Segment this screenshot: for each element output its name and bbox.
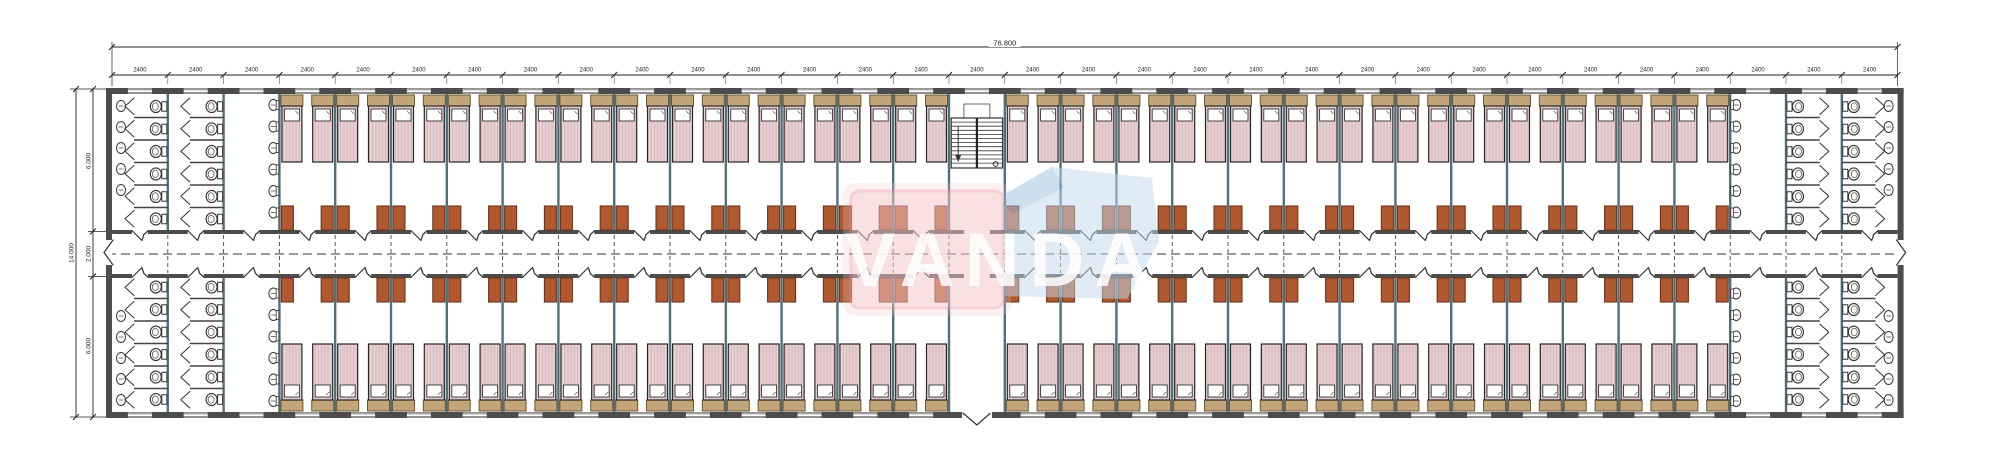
pillow xyxy=(1375,385,1390,397)
stall-door-swing xyxy=(125,143,134,160)
headboard xyxy=(1509,400,1531,411)
bay-width-label: 2400 xyxy=(803,68,817,74)
bay-width-label: 2400 xyxy=(1082,68,1096,74)
stall-door-swing xyxy=(181,121,190,138)
basin-back xyxy=(276,208,279,217)
table xyxy=(600,206,612,230)
pillow xyxy=(619,385,634,397)
stall-door-swing xyxy=(181,98,190,115)
pillow xyxy=(563,109,578,121)
headboard xyxy=(479,400,501,411)
pillow xyxy=(1152,109,1167,121)
pillow xyxy=(898,385,913,397)
headboard xyxy=(1062,95,1084,106)
table xyxy=(1286,278,1298,302)
headboard xyxy=(926,95,948,106)
pillow xyxy=(1624,109,1639,121)
entrance xyxy=(962,412,992,426)
pillow xyxy=(675,109,690,121)
pillow xyxy=(1456,109,1471,121)
bay-width-label: 2400 xyxy=(1417,68,1431,74)
headboard xyxy=(1428,95,1450,106)
headboard xyxy=(783,400,805,411)
table xyxy=(784,278,796,302)
pillow xyxy=(284,109,299,121)
floorplan-canvas: 76.8002400240024002400240024002400240024… xyxy=(0,0,2000,474)
table xyxy=(1047,206,1059,230)
table xyxy=(1047,278,1059,302)
table xyxy=(656,206,668,230)
headboard xyxy=(312,95,334,106)
pillow xyxy=(1654,385,1669,397)
headboard xyxy=(1062,400,1084,411)
table xyxy=(1621,206,1633,230)
pillow xyxy=(706,385,721,397)
pillow xyxy=(1233,109,1248,121)
table xyxy=(1102,278,1114,302)
stall-door-swing xyxy=(181,166,190,183)
toilet-tank xyxy=(162,147,167,157)
headboard xyxy=(1230,400,1252,411)
headboard xyxy=(1564,400,1586,411)
headboard xyxy=(1205,95,1227,106)
pillow xyxy=(817,385,832,397)
headboard xyxy=(281,95,303,106)
pillow xyxy=(1041,385,1056,397)
pillow xyxy=(1177,385,1192,397)
room-depth-label: 6.000 xyxy=(86,152,93,169)
pillow xyxy=(1568,385,1583,397)
table xyxy=(1230,278,1242,302)
headboard xyxy=(1707,95,1729,106)
pillow xyxy=(483,109,498,121)
headboard xyxy=(895,400,917,411)
bay-width-label: 2400 xyxy=(1863,68,1877,74)
table xyxy=(1565,278,1577,302)
pillow xyxy=(1624,385,1639,397)
headboard xyxy=(393,400,415,411)
pillow xyxy=(762,109,777,121)
pillow xyxy=(1487,385,1502,397)
table xyxy=(672,206,684,230)
pillow xyxy=(1512,385,1527,397)
headboard xyxy=(1316,400,1338,411)
table xyxy=(1230,206,1242,230)
stair-landing xyxy=(964,104,990,118)
bay-width-label: 2400 xyxy=(1696,68,1710,74)
headboard xyxy=(337,400,359,411)
headboard xyxy=(1260,400,1282,411)
table xyxy=(935,206,947,230)
table xyxy=(1342,206,1354,230)
table xyxy=(768,278,780,302)
headboard xyxy=(814,95,836,106)
headboard xyxy=(1230,95,1252,106)
table xyxy=(1660,278,1672,302)
table xyxy=(321,206,333,230)
table xyxy=(712,278,724,302)
headboard xyxy=(758,95,780,106)
bay-width-label: 2400 xyxy=(524,68,538,74)
headboard xyxy=(895,95,917,106)
headboard xyxy=(672,95,694,106)
headboard xyxy=(1453,95,1475,106)
headboard xyxy=(616,95,638,106)
headboard xyxy=(814,400,836,411)
pillow xyxy=(1010,109,1025,121)
headboard xyxy=(870,400,892,411)
floorplan-svg: 76.8002400240024002400240024002400240024… xyxy=(0,0,2000,474)
headboard xyxy=(368,95,390,106)
table xyxy=(393,206,405,230)
table xyxy=(1214,278,1226,302)
table xyxy=(1118,206,1130,230)
table xyxy=(377,278,389,302)
pillow xyxy=(427,109,442,121)
pillow xyxy=(396,109,411,121)
headboard xyxy=(616,400,638,411)
table xyxy=(449,206,461,230)
headboard xyxy=(1397,400,1419,411)
table xyxy=(1174,206,1186,230)
headboard xyxy=(368,400,390,411)
bay-width-label: 2400 xyxy=(1026,68,1040,74)
pillow xyxy=(1431,109,1446,121)
bay-width-label: 2400 xyxy=(1138,68,1152,74)
pillow xyxy=(1345,109,1360,121)
pillow xyxy=(1041,109,1056,121)
toilet-tank xyxy=(162,214,167,224)
table xyxy=(433,278,445,302)
headboard xyxy=(312,400,334,411)
table xyxy=(1397,278,1409,302)
table xyxy=(1509,206,1521,230)
bay-width-label: 2400 xyxy=(1249,68,1263,74)
headboard xyxy=(591,95,613,106)
stall-door-swing xyxy=(181,143,190,160)
wall-bottom xyxy=(106,412,1904,418)
headboard xyxy=(1285,95,1307,106)
table xyxy=(935,278,947,302)
headboard xyxy=(1149,400,1171,411)
stall-door-swing xyxy=(125,211,134,228)
headboard xyxy=(1149,95,1171,106)
bay-width-label: 2400 xyxy=(1584,68,1598,74)
pillow xyxy=(1710,109,1725,121)
bay-width-label: 2400 xyxy=(1640,68,1654,74)
pillow xyxy=(1152,385,1167,397)
table xyxy=(1605,206,1617,230)
table xyxy=(1326,278,1338,302)
table xyxy=(544,278,556,302)
pillow xyxy=(1400,385,1415,397)
table xyxy=(1716,278,1728,302)
pillow xyxy=(787,385,802,397)
table xyxy=(1063,206,1075,230)
pillow xyxy=(929,385,944,397)
table xyxy=(1493,278,1505,302)
pillow xyxy=(619,109,634,121)
stall-door-swing xyxy=(181,188,190,205)
sanitary-right-bottom xyxy=(1731,279,1893,408)
toilet-tank xyxy=(218,192,223,202)
table xyxy=(823,278,835,302)
height-total-label: 14.000 xyxy=(69,243,76,263)
table xyxy=(1270,206,1282,230)
exit-opening-right xyxy=(1897,240,1903,265)
pillow xyxy=(594,109,609,121)
headboard xyxy=(1595,400,1617,411)
pillow xyxy=(1654,109,1669,121)
headboard xyxy=(1372,95,1394,106)
bay-width-label: 2400 xyxy=(356,68,370,74)
pillow xyxy=(538,109,553,121)
headboard xyxy=(337,95,359,106)
pillow xyxy=(315,109,330,121)
table xyxy=(1565,206,1577,230)
pillow xyxy=(842,385,857,397)
pillow xyxy=(1208,109,1223,121)
basin-back xyxy=(276,122,279,131)
pillow xyxy=(594,385,609,397)
headboard xyxy=(1118,400,1140,411)
pillow xyxy=(452,109,467,121)
table xyxy=(560,206,572,230)
headboard xyxy=(1341,95,1363,106)
headboard xyxy=(281,400,303,411)
headboard xyxy=(1620,95,1642,106)
bay-width-label: 2400 xyxy=(914,68,928,74)
headboard xyxy=(535,95,557,106)
toilet-tank xyxy=(218,169,223,179)
headboard xyxy=(1676,95,1698,106)
pillow xyxy=(650,109,665,121)
headboard xyxy=(1707,400,1729,411)
table xyxy=(712,206,724,230)
table xyxy=(1453,278,1465,302)
headboard xyxy=(591,400,613,411)
table xyxy=(1676,206,1688,230)
headboard xyxy=(1397,95,1419,106)
stall-door-swing xyxy=(125,121,134,138)
pillow xyxy=(1289,109,1304,121)
pillow xyxy=(873,385,888,397)
pillow xyxy=(817,109,832,121)
headboard xyxy=(839,400,861,411)
table xyxy=(1621,278,1633,302)
table xyxy=(1270,278,1282,302)
headboard xyxy=(1539,400,1561,411)
table xyxy=(281,278,293,302)
stall-door-swing xyxy=(125,98,134,115)
table xyxy=(784,206,796,230)
headboard xyxy=(839,95,861,106)
toilet-tank xyxy=(162,102,167,112)
pillow xyxy=(1233,385,1248,397)
table xyxy=(1326,206,1338,230)
dimension-left: 14.0006.0002.0006.000 xyxy=(69,86,113,420)
table xyxy=(377,206,389,230)
headboard xyxy=(1174,400,1196,411)
bay-width-label: 2400 xyxy=(1528,68,1542,74)
bay-width-label: 2400 xyxy=(1807,68,1821,74)
headboard xyxy=(1093,95,1115,106)
pillow xyxy=(1487,109,1502,121)
table xyxy=(1063,278,1075,302)
table xyxy=(1158,206,1170,230)
wall-top xyxy=(106,88,1904,94)
room-depth-label: 6.000 xyxy=(86,337,93,354)
table xyxy=(656,278,668,302)
table xyxy=(321,278,333,302)
headboard xyxy=(1285,400,1307,411)
table xyxy=(1605,278,1617,302)
toilet-tank xyxy=(218,147,223,157)
toilet-tank xyxy=(162,169,167,179)
pillow xyxy=(1375,109,1390,121)
headboard xyxy=(1428,400,1450,411)
pillow xyxy=(675,385,690,397)
table xyxy=(1437,206,1449,230)
table xyxy=(895,206,907,230)
toilet-tank xyxy=(218,102,223,112)
bay-width-label: 2400 xyxy=(1751,68,1765,74)
headboard xyxy=(1372,400,1394,411)
headboard xyxy=(1595,95,1617,106)
pillow xyxy=(1096,385,1111,397)
pillow xyxy=(898,109,913,121)
bay-width-label: 2400 xyxy=(245,68,259,74)
toilet-tank xyxy=(162,124,167,134)
table xyxy=(1286,206,1298,230)
exit-opening-left xyxy=(106,240,112,265)
bay-width-label: 2400 xyxy=(1472,68,1486,74)
corridor-width-label: 2.000 xyxy=(86,245,93,262)
headboard xyxy=(702,95,724,106)
table xyxy=(839,278,851,302)
stair-opening xyxy=(964,230,990,235)
stall-door-swing xyxy=(125,166,134,183)
table xyxy=(839,206,851,230)
table xyxy=(768,206,780,230)
pillow xyxy=(1431,385,1446,397)
pillow xyxy=(1264,385,1279,397)
pillow xyxy=(1599,109,1614,121)
headboard xyxy=(1006,400,1028,411)
pillow xyxy=(1066,109,1081,121)
headboard xyxy=(1564,95,1586,106)
total-width-label: 76.800 xyxy=(993,39,1016,48)
table xyxy=(505,206,517,230)
pillow xyxy=(1543,109,1558,121)
pillow xyxy=(284,385,299,397)
basin-back xyxy=(276,144,279,153)
headboard xyxy=(504,400,526,411)
headboard xyxy=(1651,95,1673,106)
headboard xyxy=(1205,400,1227,411)
bay-width-label: 2400 xyxy=(412,68,426,74)
table xyxy=(544,206,556,230)
pillow xyxy=(1264,109,1279,121)
pillow xyxy=(396,385,411,397)
headboard xyxy=(560,95,582,106)
pillow xyxy=(1066,385,1081,397)
table xyxy=(505,278,517,302)
table xyxy=(1214,206,1226,230)
headboard xyxy=(448,95,470,106)
headboard xyxy=(1539,95,1561,106)
headboard xyxy=(672,400,694,411)
table xyxy=(489,278,501,302)
pillow xyxy=(1512,109,1527,121)
corridor-wall-top xyxy=(112,230,1898,234)
headboard xyxy=(1118,95,1140,106)
table xyxy=(1381,206,1393,230)
sanitary-left-top xyxy=(117,98,279,227)
table xyxy=(616,278,628,302)
headboard xyxy=(423,95,445,106)
toilet-tank xyxy=(162,192,167,202)
bay-width-label: 2400 xyxy=(970,68,984,74)
pillow xyxy=(731,109,746,121)
table xyxy=(823,206,835,230)
headboard xyxy=(727,95,749,106)
pillow xyxy=(483,385,498,397)
table xyxy=(879,278,891,302)
stall-door-swing xyxy=(181,211,190,228)
pillow xyxy=(1177,109,1192,121)
pillow xyxy=(340,109,355,121)
pillow xyxy=(787,109,802,121)
pillow xyxy=(508,109,523,121)
pillow xyxy=(1568,109,1583,121)
basin-back xyxy=(276,101,279,110)
pillow xyxy=(1710,385,1725,397)
pillow xyxy=(873,109,888,121)
bay-width-label: 2400 xyxy=(635,68,649,74)
pillow xyxy=(340,385,355,397)
headboard xyxy=(1006,95,1028,106)
pillow xyxy=(452,385,467,397)
pillow xyxy=(1456,385,1471,397)
pillow xyxy=(1320,385,1335,397)
table xyxy=(449,278,461,302)
headboard xyxy=(393,95,415,106)
pillow xyxy=(1289,385,1304,397)
pillow xyxy=(1400,109,1415,121)
pillow xyxy=(929,109,944,121)
headboard xyxy=(870,95,892,106)
pillow xyxy=(1679,385,1694,397)
basin-back xyxy=(276,165,279,174)
headboard xyxy=(1484,400,1506,411)
bay-width-label: 2400 xyxy=(189,68,203,74)
headboard xyxy=(1260,95,1282,106)
bay-width-label: 2400 xyxy=(859,68,873,74)
headboard xyxy=(702,400,724,411)
pillow xyxy=(538,385,553,397)
bay-width-label: 2400 xyxy=(691,68,705,74)
table xyxy=(616,206,628,230)
pillow xyxy=(731,385,746,397)
table xyxy=(1342,278,1354,302)
table xyxy=(337,206,349,230)
table xyxy=(1549,278,1561,302)
pillow xyxy=(1543,385,1558,397)
toilet-tank xyxy=(218,124,223,134)
stall-door-swing xyxy=(125,188,134,205)
headboard xyxy=(1620,400,1642,411)
